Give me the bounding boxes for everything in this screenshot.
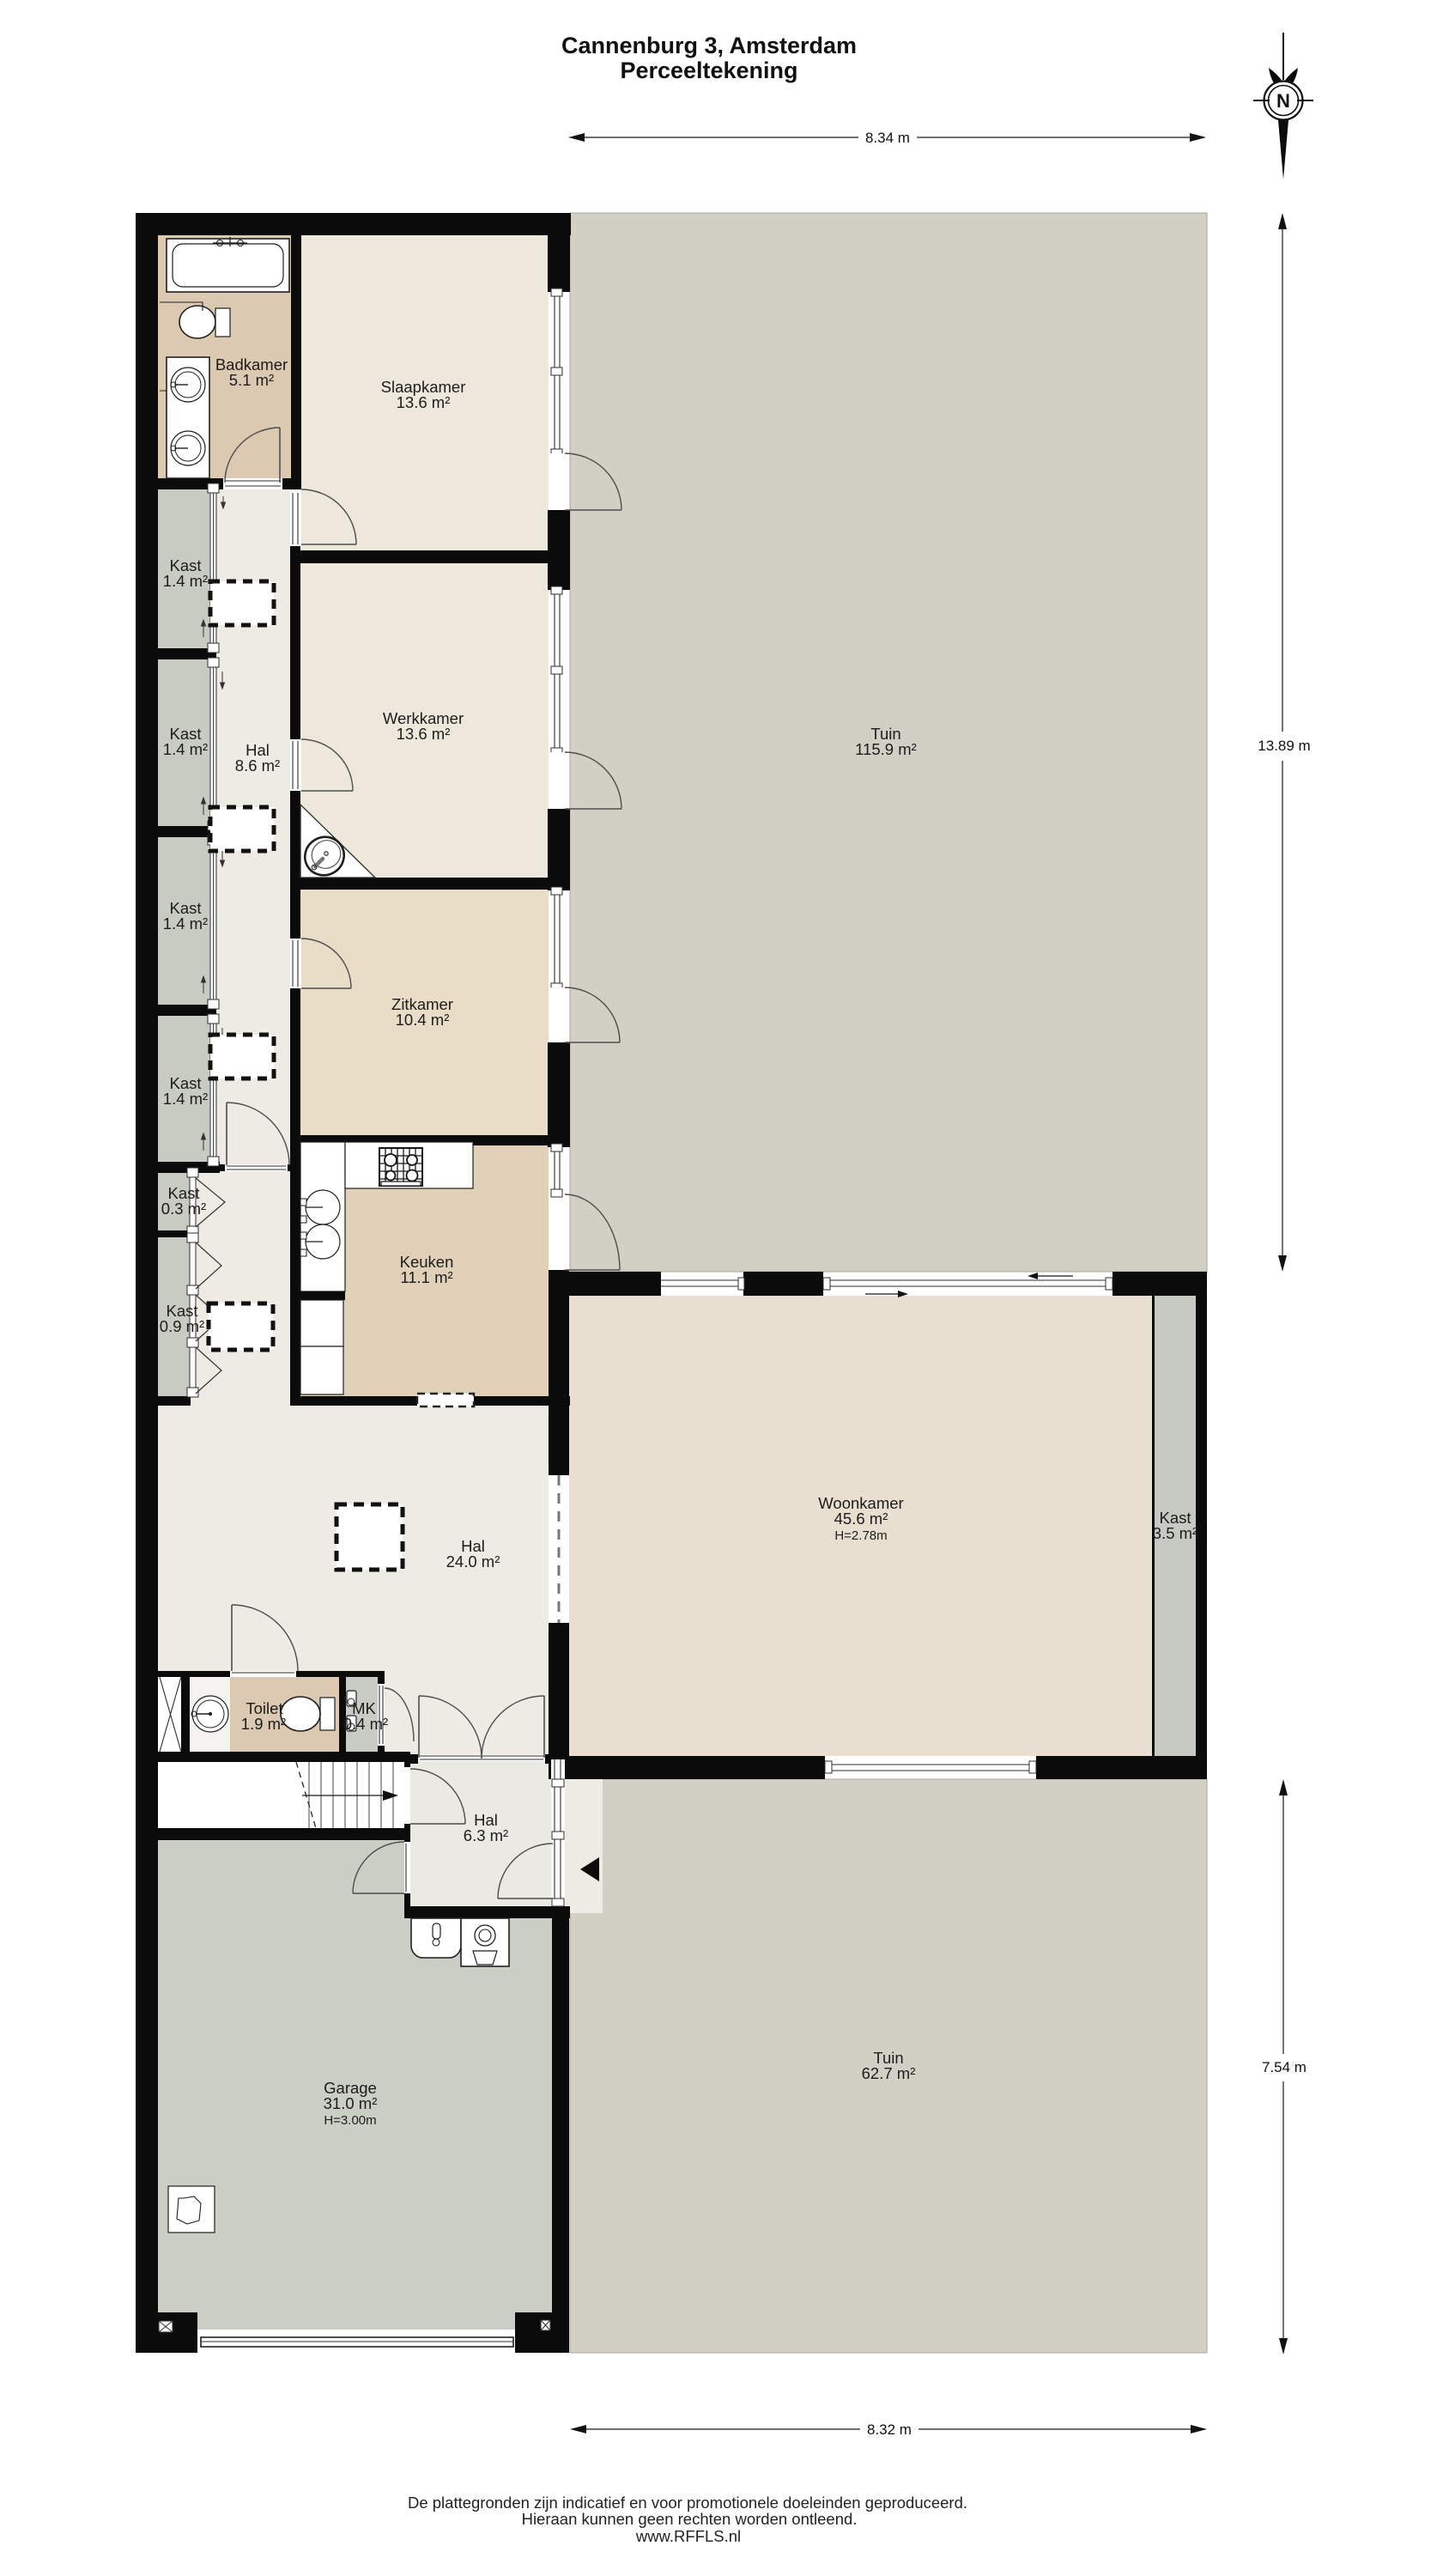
svg-text:5.1 m²: 5.1 m²	[229, 371, 274, 389]
svg-text:10.4 m²: 10.4 m²	[396, 1011, 450, 1029]
svg-text:1.4 m²: 1.4 m²	[163, 572, 208, 590]
svg-text:N: N	[1276, 90, 1290, 112]
svg-text:0.9 m²: 0.9 m²	[160, 1317, 204, 1335]
svg-text:24.0 m²: 24.0 m²	[446, 1552, 500, 1571]
svg-text:Cannenburg 3, Amsterdam: Cannenburg 3, Amsterdam	[561, 33, 857, 58]
svg-text:8.32 m: 8.32 m	[867, 2421, 912, 2438]
svg-text:7.54 m: 7.54 m	[1262, 2059, 1307, 2075]
svg-text:3.5 m²: 3.5 m²	[1153, 1524, 1197, 1542]
svg-text:www.RFFLS.nl: www.RFFLS.nl	[635, 2527, 741, 2545]
svg-text:11.1 m²: 11.1 m²	[400, 1268, 452, 1286]
svg-text:115.9 m²: 115.9 m²	[855, 740, 917, 758]
svg-text:0.4 m²: 0.4 m²	[343, 1715, 388, 1733]
svg-text:0.3 m²: 0.3 m²	[161, 1200, 206, 1218]
svg-text:H=2.78m: H=2.78m	[834, 1528, 887, 1543]
svg-text:13.6 m²: 13.6 m²	[397, 725, 451, 743]
svg-text:31.0 m²: 31.0 m²	[324, 2094, 378, 2112]
svg-text:8.34 m: 8.34 m	[865, 130, 910, 146]
svg-text:H=3.00m: H=3.00m	[324, 2113, 376, 2128]
svg-text:8.6 m²: 8.6 m²	[235, 756, 280, 775]
svg-text:De plattegronden zijn indicati: De plattegronden zijn indicatief en voor…	[408, 2494, 967, 2512]
svg-text:Perceeltekening: Perceeltekening	[620, 58, 797, 83]
svg-text:45.6 m²: 45.6 m²	[834, 1510, 888, 1528]
svg-text:13.6 m²: 13.6 m²	[397, 393, 451, 411]
svg-text:1.4 m²: 1.4 m²	[163, 914, 208, 933]
svg-text:1.4 m²: 1.4 m²	[163, 1090, 208, 1108]
svg-text:6.3 m²: 6.3 m²	[464, 1826, 508, 1844]
svg-text:Hieraan kunnen geen rechten wo: Hieraan kunnen geen rechten worden ontle…	[522, 2510, 858, 2528]
svg-text:1.9 m²: 1.9 m²	[241, 1715, 286, 1733]
svg-text:13.89 m: 13.89 m	[1258, 738, 1310, 754]
svg-text:62.7 m²: 62.7 m²	[862, 2064, 916, 2082]
svg-text:1.4 m²: 1.4 m²	[163, 740, 208, 758]
